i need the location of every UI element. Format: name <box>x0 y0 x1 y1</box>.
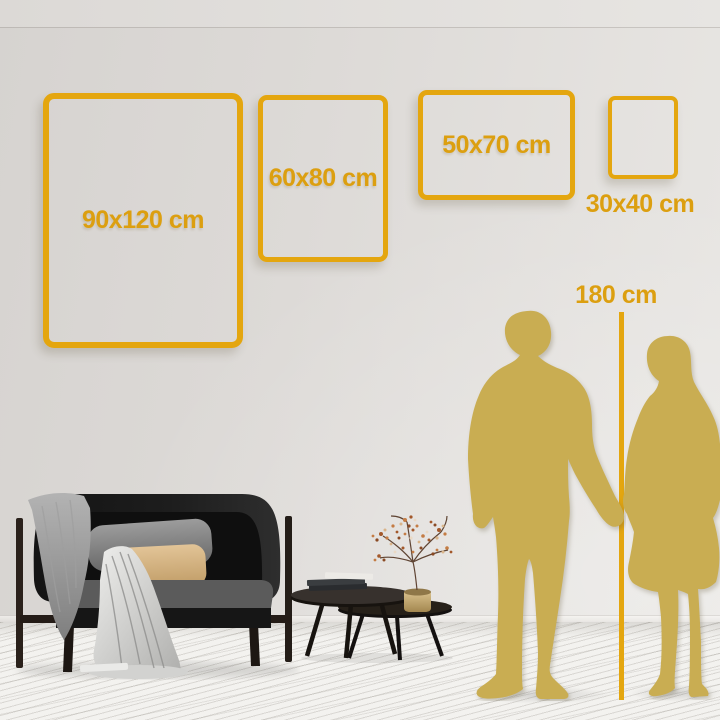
size-guide-scene: 90x120 cm 60x80 cm 50x70 cm 30x40 cm 180… <box>0 0 720 720</box>
woman-figure <box>623 336 720 697</box>
plant-stems <box>380 516 448 590</box>
ceiling <box>0 0 720 27</box>
frame-90x120: 90x120 cm <box>43 93 243 348</box>
sofa-left-post <box>16 518 23 668</box>
frame-50x70-label: 50x70 cm <box>442 131 551 160</box>
frame-50x70: 50x70 cm <box>418 90 575 200</box>
book-stack <box>307 572 373 591</box>
sofa-illustration <box>8 484 300 680</box>
height-ruler-label: 180 cm <box>570 281 662 310</box>
frame-30x40-label: 30x40 cm <box>575 190 705 219</box>
man-silhouette <box>460 309 626 701</box>
frame-60x80: 60x80 cm <box>258 95 388 262</box>
coffee-tables-illustration <box>285 508 455 663</box>
frame-90x120-label: 90x120 cm <box>82 206 204 235</box>
seat-cushion <box>53 580 274 608</box>
tables-shadow <box>301 653 453 663</box>
frame-30x40 <box>608 96 678 179</box>
woman-silhouette <box>620 332 720 700</box>
ceiling-wall-line <box>0 27 720 28</box>
frame-60x80-label: 60x80 cm <box>269 164 378 193</box>
man-figure <box>468 311 624 699</box>
